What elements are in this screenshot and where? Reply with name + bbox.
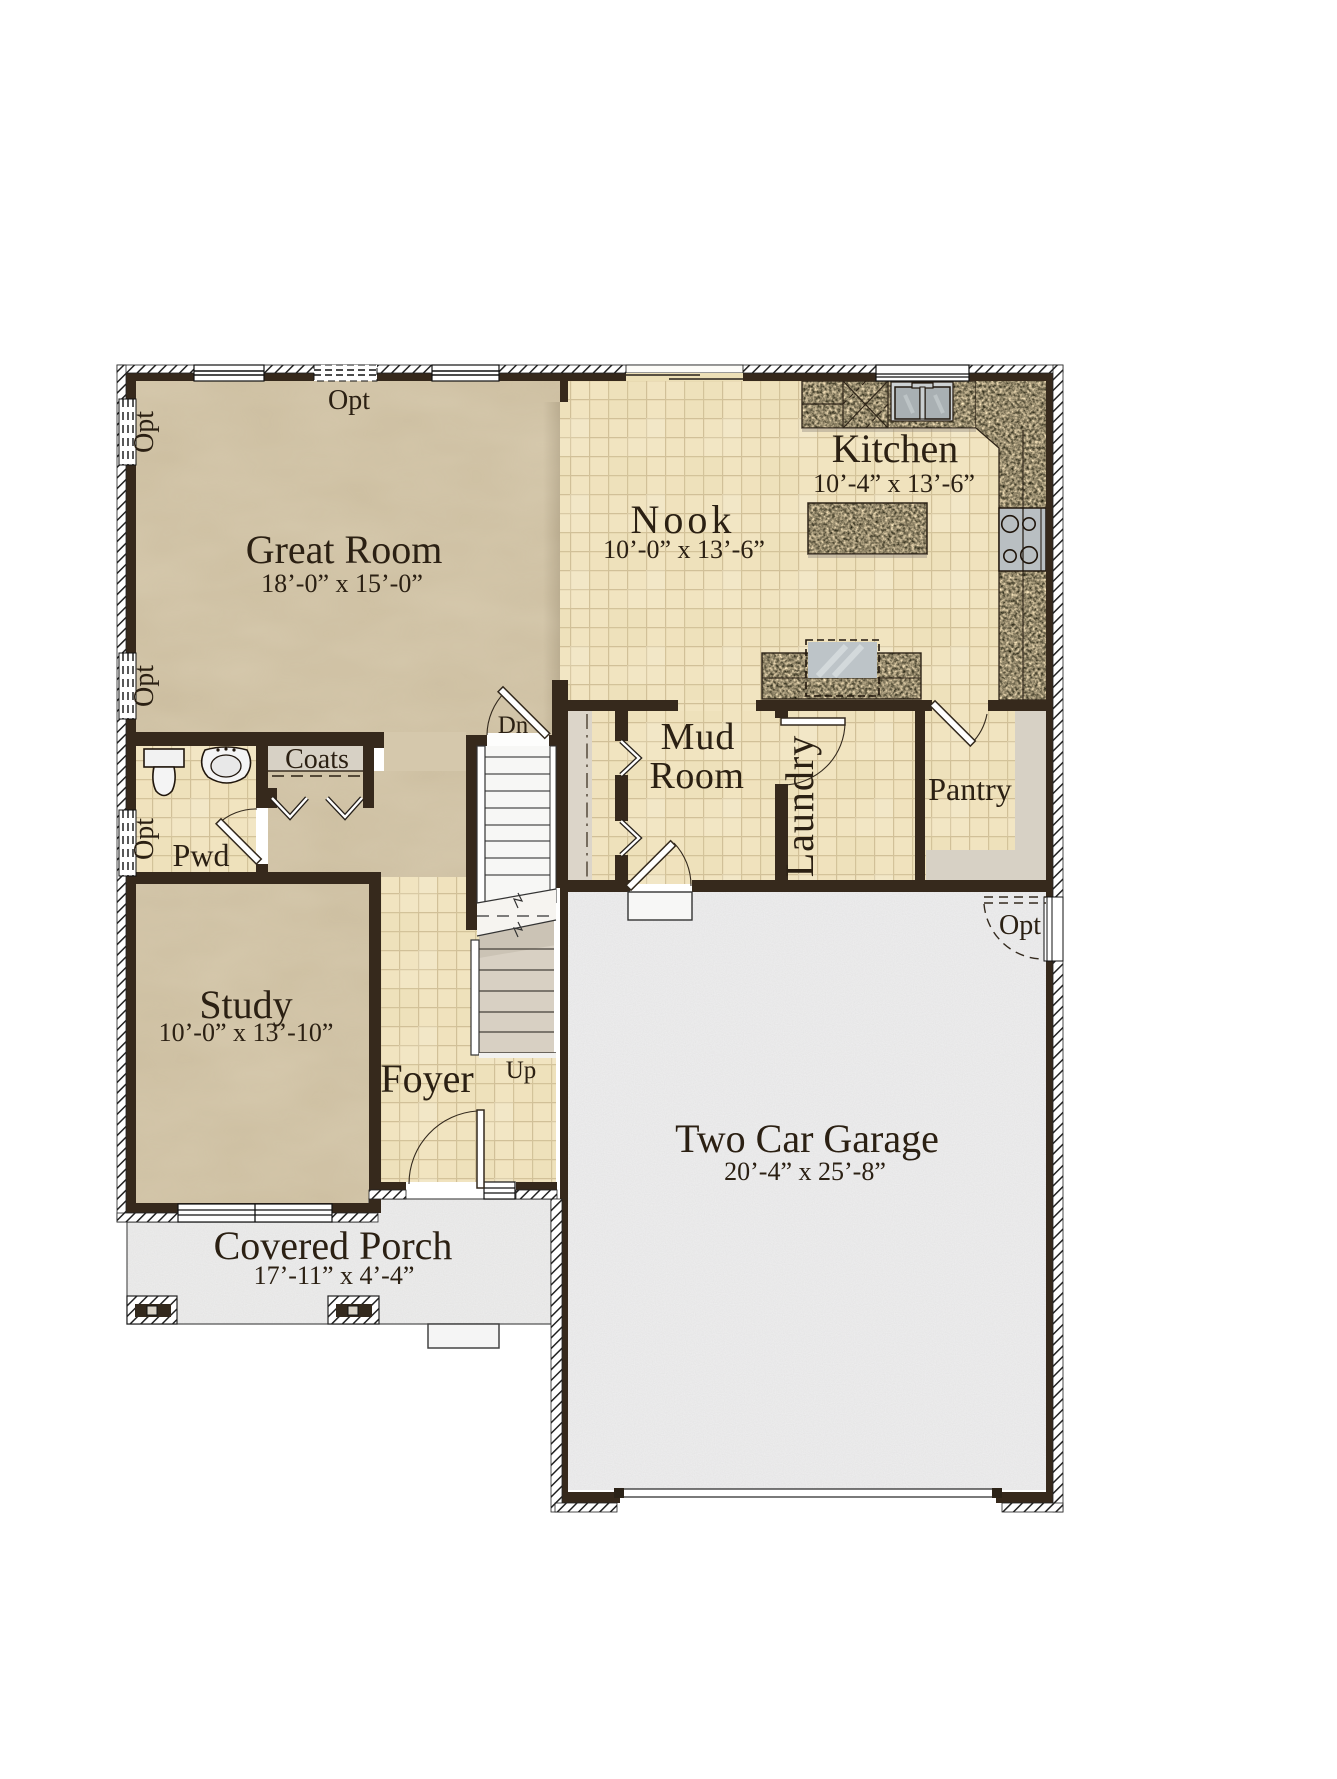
svg-text:Opt: Opt <box>129 818 160 860</box>
svg-text:Coats: Coats <box>285 744 349 775</box>
svg-text:10’-4” x 13’-6”: 10’-4” x 13’-6” <box>813 469 975 498</box>
svg-text:10’-0” x 13’-10”: 10’-0” x 13’-10” <box>159 1018 334 1047</box>
svg-text:Laundry: Laundry <box>777 735 822 878</box>
svg-text:Foyer: Foyer <box>380 1056 473 1101</box>
svg-text:Opt: Opt <box>129 665 160 707</box>
svg-text:Mud: Mud <box>661 716 736 758</box>
svg-text:18’-0” x 15’-0”: 18’-0” x 15’-0” <box>261 569 423 598</box>
svg-text:Pantry: Pantry <box>928 771 1012 807</box>
svg-text:Up: Up <box>506 1057 537 1084</box>
svg-text:20’-4” x 25’-8”: 20’-4” x 25’-8” <box>724 1157 886 1186</box>
svg-text:10’-0” x 13’-6”: 10’-0” x 13’-6” <box>603 535 765 564</box>
svg-text:Pwd: Pwd <box>173 837 230 873</box>
svg-text:Two Car Garage: Two Car Garage <box>675 1116 939 1161</box>
svg-text:Opt: Opt <box>999 910 1041 941</box>
svg-text:Great Room: Great Room <box>246 527 443 572</box>
svg-text:Opt: Opt <box>328 385 370 416</box>
svg-text:Room: Room <box>650 755 745 797</box>
svg-text:Opt: Opt <box>129 411 160 453</box>
svg-text:Kitchen: Kitchen <box>832 426 959 471</box>
svg-text:Dn: Dn <box>498 712 529 739</box>
svg-text:17’-11” x 4’-4”: 17’-11” x 4’-4” <box>254 1261 415 1290</box>
